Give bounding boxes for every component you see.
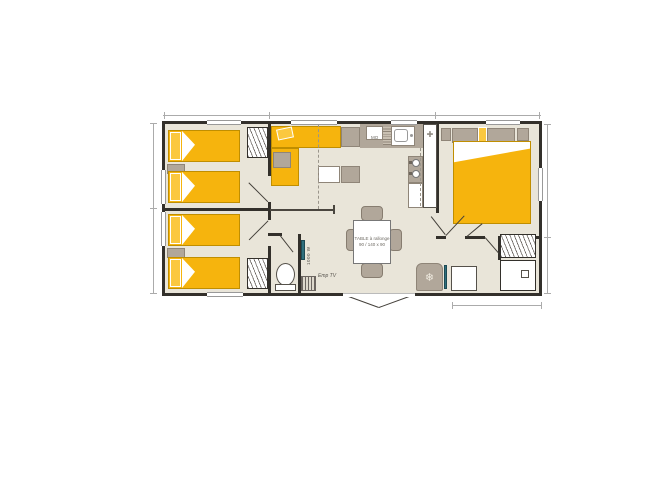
dimension-line-right: [547, 124, 548, 293]
toilet-tank: [275, 284, 296, 291]
door-wc: [279, 235, 293, 252]
tv-spot-label: Emp TV: [318, 273, 336, 279]
dining-chair-top: [361, 206, 383, 221]
dimension-tick: [544, 237, 551, 238]
dimension-tick: [150, 208, 157, 209]
fridge-side-panel: [444, 265, 447, 289]
wall-partition-corridor: [270, 209, 334, 211]
window-left-1: [161, 170, 166, 204]
window-master-right: [538, 168, 543, 201]
dimension-tick: [544, 124, 551, 125]
dimension-tick: [452, 302, 453, 309]
wall-bedrooms-lower: [268, 246, 271, 293]
dimension-tick: [150, 123, 157, 124]
stove-knob-1: [409, 161, 412, 164]
bedroom2-wardrobe: [247, 258, 268, 289]
window-kitchen-top: [391, 120, 417, 125]
kitchen-dashed-line: [420, 148, 421, 206]
sofa-end-table: [341, 127, 360, 147]
dimension-tick: [435, 112, 436, 119]
coffee-table: [318, 166, 340, 183]
wall-bedroom-divider: [165, 208, 270, 211]
dining-table: TABLE à rallonge 90 / 140 x 90: [353, 220, 391, 264]
stove-burner-2: [412, 170, 420, 178]
master-nightstand-left: [441, 128, 451, 141]
wall-bedrooms-mid: [268, 202, 271, 220]
shower-drain: [521, 270, 529, 278]
wall-angled-master-entry-1: [430, 216, 445, 235]
window-bedroom2-bottom: [207, 292, 243, 297]
window-left-2: [161, 212, 166, 246]
dimension-tick: [541, 302, 542, 309]
dimension-tick: [164, 112, 165, 119]
master-nightstand-right: [517, 128, 529, 141]
ceiling-break-line: [318, 124, 319, 209]
bedroom1-bed-bottom-pillow: [170, 173, 181, 201]
door-bedroom1: [248, 182, 268, 202]
fridge: ❄: [416, 263, 443, 291]
kitchen-cross-icon: ✚: [424, 128, 436, 140]
stove-knob-2: [409, 172, 412, 175]
floor-plan-canvas: MO ✚ TABLE à rallonge 90 / 140 x 90 1000…: [0, 0, 667, 500]
bedroom1-bed-top-pillow: [170, 132, 181, 160]
wall-partition-end: [333, 205, 335, 214]
dimension-tick: [150, 293, 157, 294]
water-heater-label: 1000 W: [306, 237, 311, 265]
dining-chair-bottom: [361, 263, 383, 278]
dimension-tick: [539, 112, 540, 119]
sink-basin: [394, 129, 408, 142]
wall-master-south-1: [436, 236, 446, 239]
dimension-line-bottom-right: [452, 305, 542, 306]
floor-plan: MO ✚ TABLE à rallonge 90 / 140 x 90 1000…: [162, 121, 542, 296]
drainer-rack: [383, 127, 391, 145]
window-bedroom1-top: [207, 120, 241, 125]
stove-burner-1: [412, 159, 420, 167]
dimension-line-top: [163, 115, 541, 116]
water-heater: [301, 240, 305, 260]
bathroom-wardrobe: [500, 234, 536, 258]
bedroom2-bed-top-pillow: [170, 216, 181, 244]
entrance-door-opening: [343, 293, 415, 297]
snowflake-icon: ❄: [425, 271, 434, 284]
sink-faucet: [410, 134, 413, 137]
door-bedroom2: [248, 220, 268, 240]
window-living-top: [291, 120, 337, 125]
dining-table-label-line2: 90 / 140 x 90: [359, 242, 385, 248]
microwave-label: MO: [371, 135, 378, 141]
shower: [500, 260, 536, 291]
sofa-armrest: [273, 152, 291, 168]
washbasin: [451, 266, 477, 291]
bedroom1-wardrobe: [247, 127, 268, 158]
toilet-bowl: [276, 263, 295, 286]
tv-stand: [301, 276, 316, 291]
dimension-tick: [269, 112, 270, 119]
window-master-top: [486, 120, 520, 125]
dimension-tick: [544, 293, 551, 294]
bedroom2-bed-bottom-pillow: [170, 259, 181, 287]
armchair: [341, 166, 360, 183]
